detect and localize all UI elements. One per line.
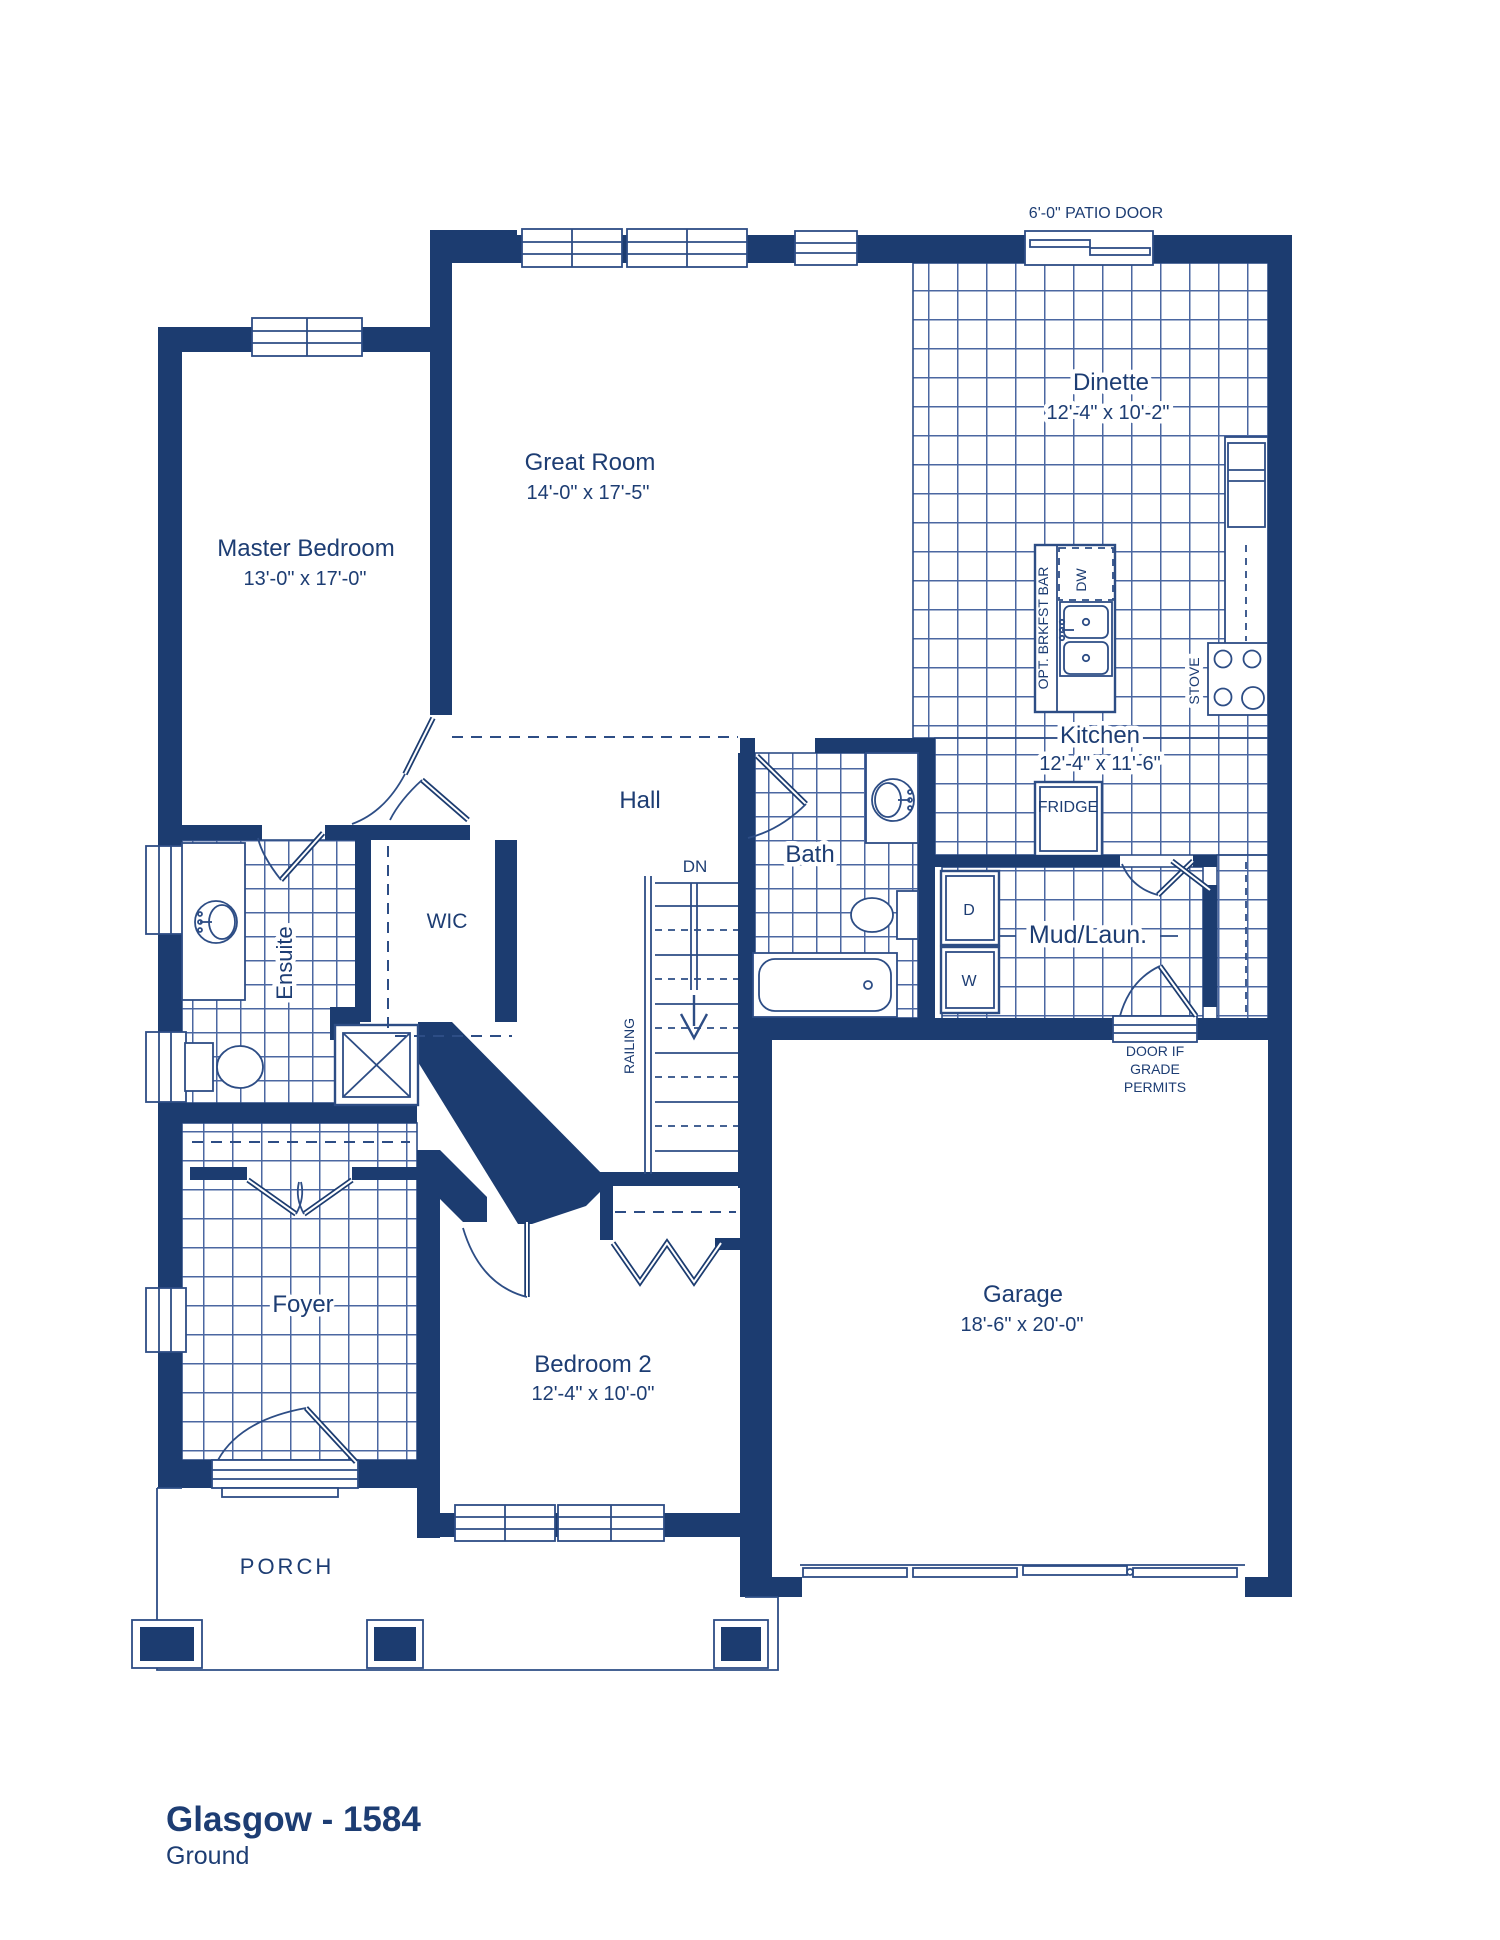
- wic-label: WIC: [427, 910, 468, 933]
- mud-laundry-label: Mud/Laun.: [1029, 921, 1147, 949]
- master-bottom-wall-right: [325, 825, 470, 840]
- wic-right-wall: [495, 840, 517, 1022]
- floor-plan-page: 6'-0" PATIO DOOR Dinette 12'-4" x 10'-2"…: [0, 0, 1500, 1940]
- ensuite-toilet-window: [146, 1032, 186, 1102]
- bedroom2-dims: 12'-4" x 10'-0": [531, 1383, 654, 1405]
- mud-top-stub: [1193, 855, 1217, 867]
- foyer-closet-stub-right: [352, 1167, 417, 1180]
- great-room-window-3: [795, 231, 857, 265]
- great-room-label: Great Room: [525, 449, 656, 476]
- porch-label: PORCH: [240, 1554, 334, 1579]
- dishwasher-label: DW: [1073, 568, 1089, 592]
- ensuite-window: [146, 846, 186, 934]
- great-room-corner-wall: [430, 230, 517, 263]
- bath-toilet-tank: [897, 891, 918, 939]
- garage-top-wall-left: [740, 1018, 1115, 1040]
- kitchen-label: Kitchen: [1060, 722, 1140, 749]
- bedroom2-door: [463, 1222, 527, 1297]
- plan-title: Glasgow - 1584: [166, 1800, 421, 1839]
- great-room-dims: 14'-0" x 17'-5": [526, 482, 649, 504]
- bath-top-wall: [815, 738, 935, 753]
- floor-plan-drawing: 6'-0" PATIO DOOR Dinette 12'-4" x 10'-2"…: [0, 0, 1500, 1940]
- bedroom2-window-1: [455, 1505, 555, 1541]
- fridge-label: FRIDGE: [1038, 799, 1098, 816]
- master-bottom-wall-left: [182, 825, 262, 840]
- mud-right-wall: [1203, 885, 1217, 1007]
- bath-right-wall: [918, 753, 935, 1018]
- plan-floor-name: Ground: [166, 1842, 249, 1870]
- bath-label: Bath: [785, 841, 834, 868]
- master-window: [252, 318, 362, 356]
- porch-post-right: [714, 1620, 768, 1668]
- garage-dims: 18'-6" x 20'-0": [960, 1314, 1083, 1336]
- great-room-window-2: [627, 229, 747, 267]
- stair-bottom-wall: [600, 1172, 742, 1186]
- master-great-wall: [430, 263, 452, 715]
- breakfast-bar-label: OPT. BRKFST BAR: [1035, 567, 1051, 690]
- garage-left-wall: [740, 1040, 772, 1597]
- garage-front-stub-left: [772, 1577, 802, 1597]
- dryer-label: D: [963, 902, 975, 919]
- fridge: [1035, 782, 1102, 856]
- bedroom2-label: Bedroom 2: [534, 1351, 651, 1378]
- wic-ensuite-wall: [355, 840, 371, 1022]
- grade-door-note-2: GRADE: [1130, 1061, 1180, 1077]
- foyer-closet-stub-left: [190, 1167, 247, 1180]
- right-exterior-wall: [1268, 235, 1292, 1597]
- washer-label: W: [961, 973, 977, 990]
- stairs: [645, 876, 738, 1174]
- hall-label: Hall: [619, 787, 660, 814]
- great-room-window-1: [522, 229, 622, 267]
- garage-top-wall-right: [1195, 1018, 1292, 1040]
- bath-top-stub: [740, 738, 755, 753]
- dinette-dims: 12'-4" x 10'-2": [1046, 402, 1169, 424]
- laundry-fixtures: [941, 871, 999, 1013]
- wic-door: [390, 780, 468, 820]
- mud-top-wall: [935, 855, 1120, 867]
- foyer-right-wall: [417, 1150, 440, 1538]
- grade-door-note-3: PERMITS: [1124, 1079, 1186, 1095]
- stove-label: STOVE: [1186, 657, 1202, 704]
- porch-post-middle: [367, 1620, 423, 1668]
- railing-label: RAILING: [621, 1018, 637, 1074]
- patio-door-note: 6'-0" PATIO DOOR: [1029, 205, 1163, 222]
- garage-door: [800, 1565, 1245, 1577]
- foyer-label: Foyer: [272, 1291, 333, 1318]
- stairs-down-label: DN: [683, 857, 708, 876]
- ensuite-label: Ensuite: [272, 926, 297, 999]
- master-bedroom-label: Master Bedroom: [217, 535, 394, 562]
- grade-door-note-1: DOOR IF: [1126, 1043, 1184, 1059]
- ensuite-toilet: [217, 1046, 263, 1088]
- kitchen-dims: 12'-4" x 11'-6": [1039, 753, 1161, 775]
- bedroom2-closet-bifold-doors: [613, 1243, 721, 1282]
- bathtub: [753, 953, 897, 1017]
- ensuite-toilet-tank: [185, 1043, 213, 1091]
- garage-front-stub-right: [1245, 1577, 1292, 1597]
- patio-door: [1025, 231, 1153, 265]
- dinette-label: Dinette: [1073, 369, 1149, 396]
- bath-toilet: [851, 898, 893, 932]
- bedroom2-window-2: [558, 1505, 664, 1541]
- stair-down-arrow: [681, 995, 707, 1038]
- garage-label: Garage: [983, 1281, 1063, 1308]
- master-door: [352, 718, 433, 824]
- foyer-window: [146, 1288, 186, 1352]
- front-wall-left: [182, 1460, 212, 1488]
- closet-left-wall: [600, 1186, 613, 1240]
- master-bedroom-dims: 13'-0" x 17'-0": [243, 568, 366, 590]
- back-hall-tile-floor: [1217, 855, 1268, 1020]
- front-wall-right: [358, 1460, 417, 1488]
- porch-post-left: [132, 1620, 202, 1668]
